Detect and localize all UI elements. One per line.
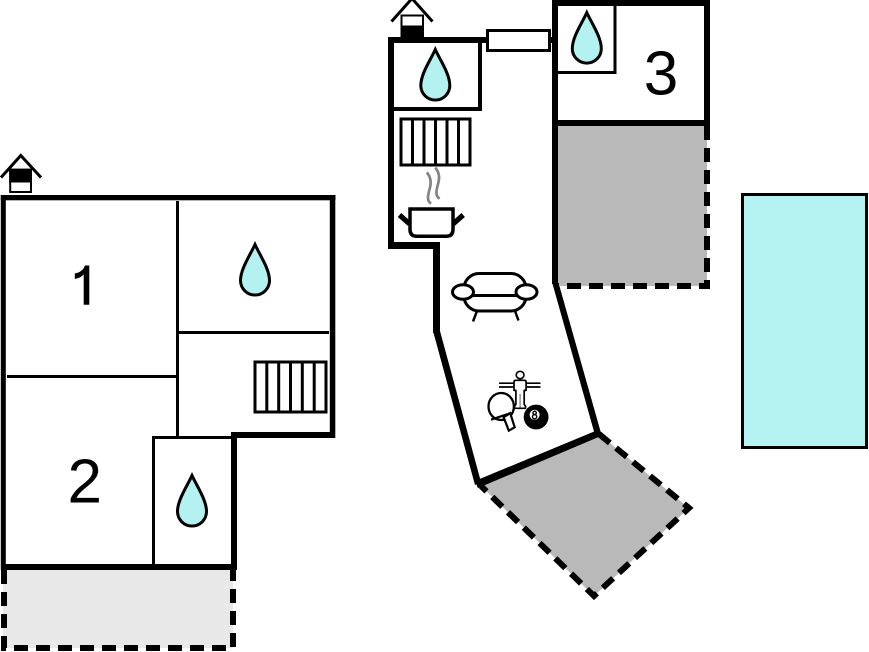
svg-text:3: 3	[644, 40, 678, 109]
svg-text:2: 2	[68, 448, 102, 517]
